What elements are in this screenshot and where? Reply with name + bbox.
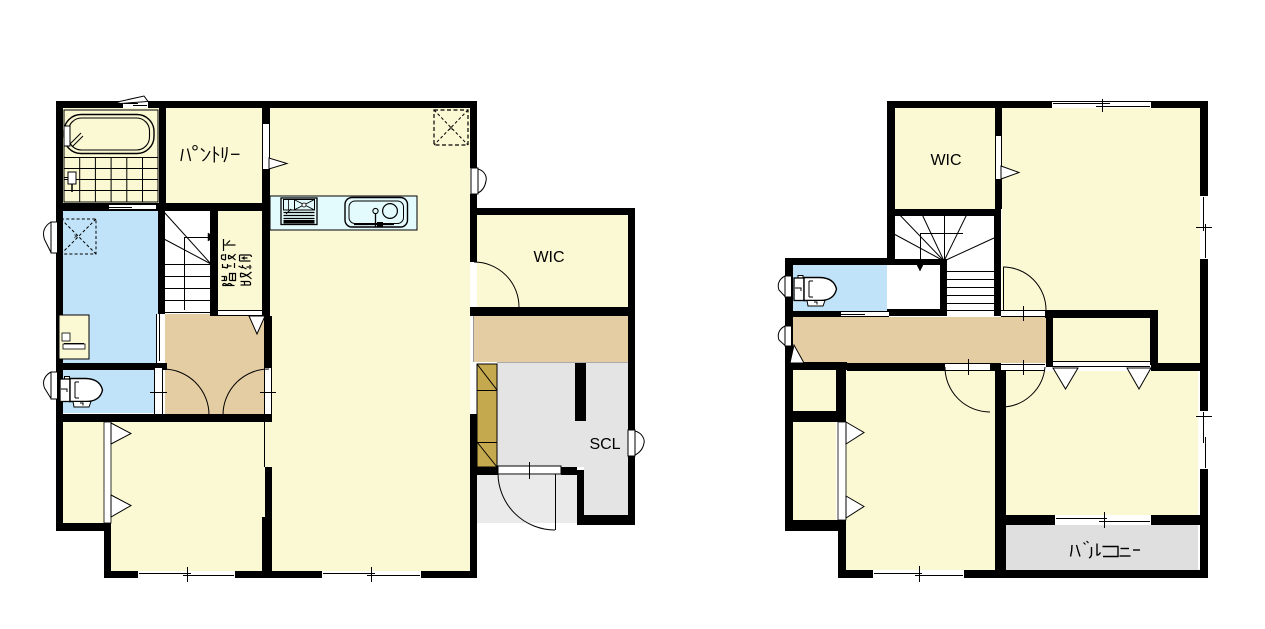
svg-text:SCL: SCL: [589, 436, 620, 453]
svg-text:WIC: WIC: [533, 249, 564, 266]
svg-text:×: ×: [449, 124, 454, 133]
svg-text:×: ×: [74, 232, 79, 241]
svg-text:WIC: WIC: [930, 152, 961, 169]
